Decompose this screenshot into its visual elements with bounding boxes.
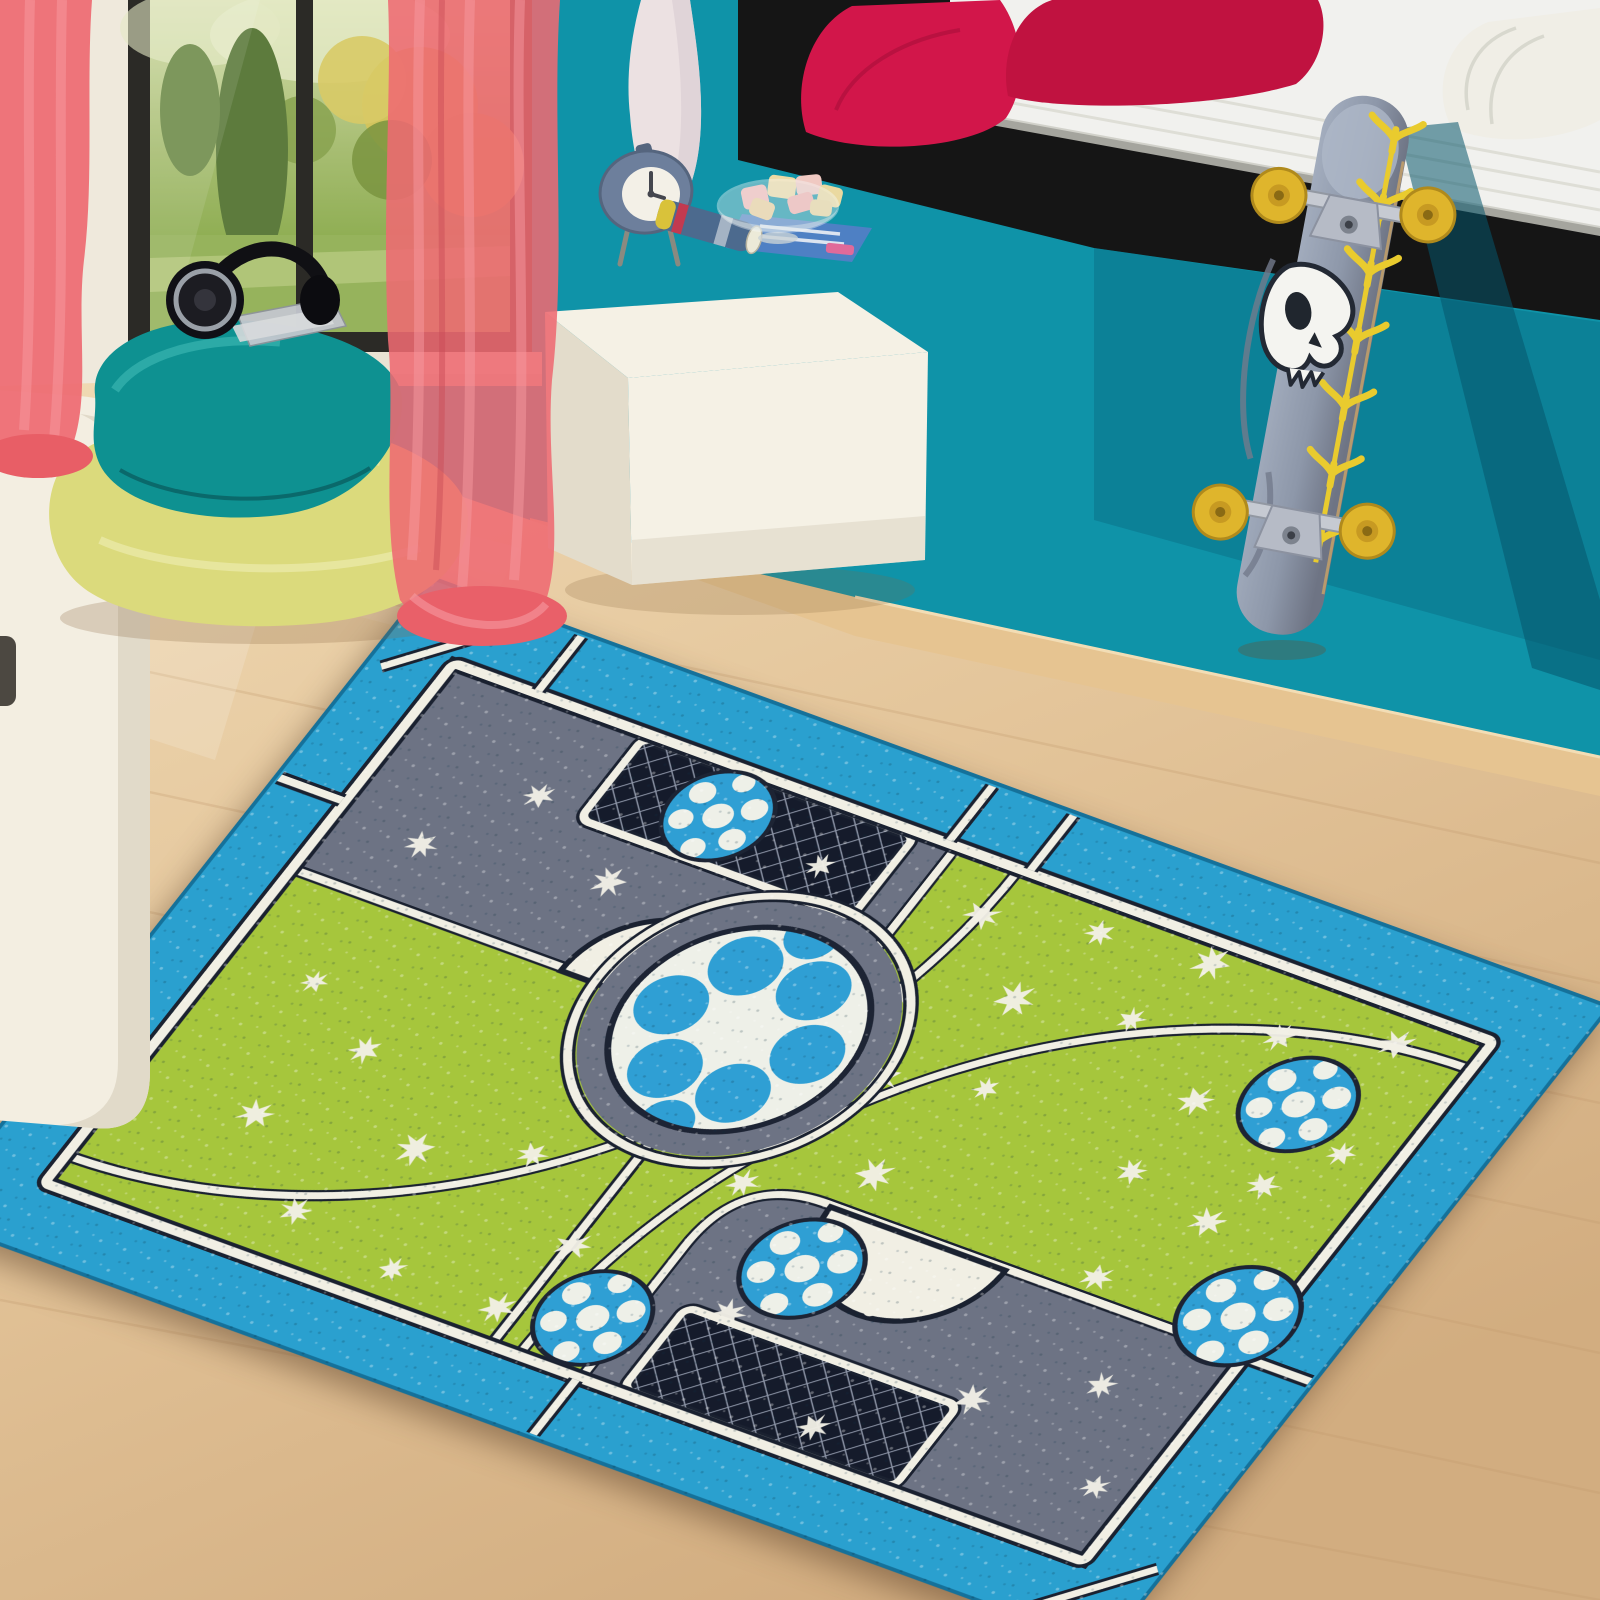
bed-pillow-red-1 [801,0,1021,147]
kids-room-photo [0,0,1600,1600]
scene-svg [0,0,1600,1600]
curtain-right [386,0,567,646]
curtain-pool [397,586,567,646]
skateboard-floor-shadow [1238,640,1326,660]
ear-cup-right [300,275,340,325]
curtain-left [0,0,93,478]
bowl-base [758,232,798,244]
side-table-slot [0,636,16,706]
